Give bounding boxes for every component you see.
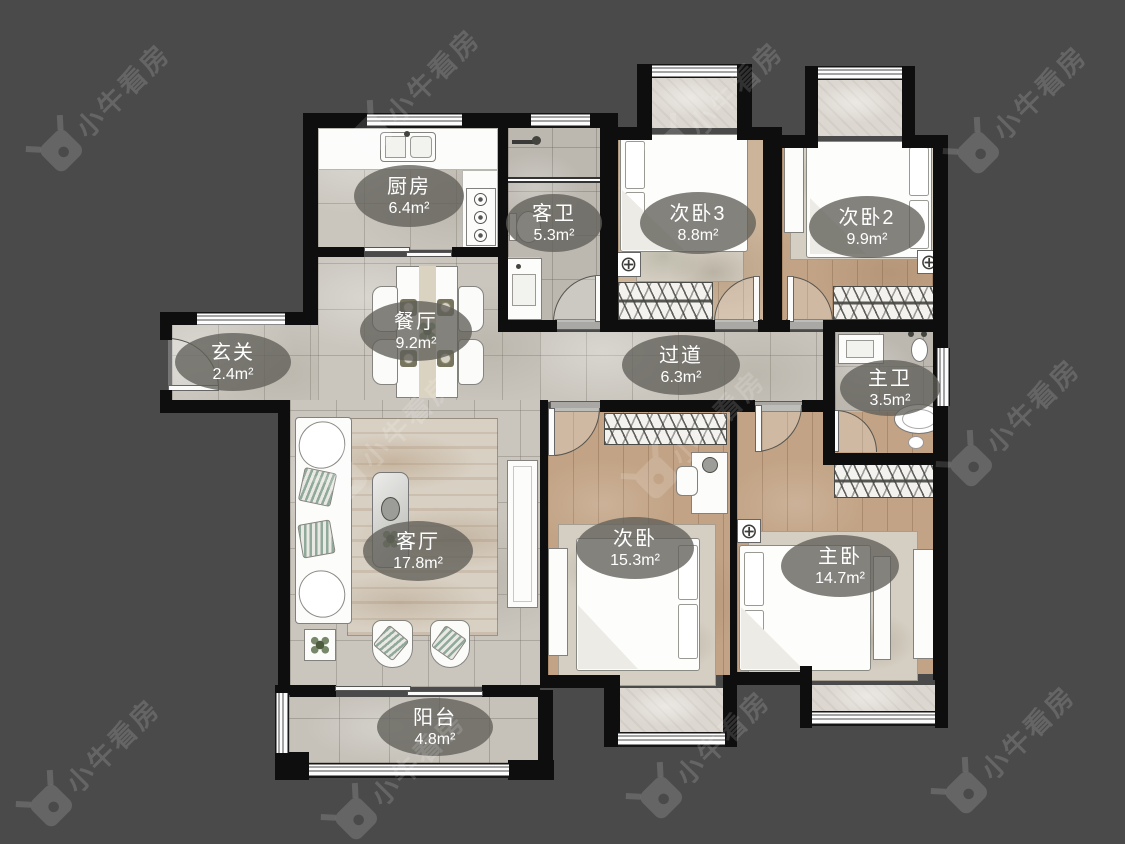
room-name: 客卫: [532, 202, 576, 227]
brand-bull-icon: [332, 794, 380, 842]
room-area: 8.8m²: [678, 227, 719, 245]
wall: [285, 312, 318, 325]
room-label-living: 客厅 17.8m²: [363, 521, 473, 581]
vanity-basin: [846, 340, 874, 358]
sink-basin: [410, 136, 432, 158]
watermark: 小牛看房: [940, 675, 1083, 818]
brand-bull-icon: [954, 128, 1002, 176]
plant-icon: [308, 633, 332, 657]
wall: [318, 247, 364, 257]
wall: [830, 320, 948, 332]
bay-window-floor: [812, 685, 935, 713]
wall: [540, 400, 548, 688]
wall: [462, 113, 532, 128]
door-leaf: [753, 276, 760, 322]
wall: [590, 113, 618, 128]
wall: [935, 666, 948, 728]
room-name: 厨房: [387, 175, 431, 200]
watermark-text: 小牛看房: [55, 688, 167, 800]
wall: [800, 666, 812, 728]
room-area: 3.5m²: [870, 392, 911, 410]
room-label-master-bath: 主卫 3.5m²: [840, 360, 940, 416]
room-name: 玄关: [211, 341, 255, 366]
room-area: 14.7m²: [815, 570, 865, 588]
faucet-icon: [404, 131, 410, 137]
floor-heating-icon: [737, 519, 761, 543]
brand-bull-icon: [37, 126, 85, 174]
room-label-master-bedroom: 主卧 14.7m²: [781, 535, 899, 597]
room-label-entry: 玄关 2.4m²: [175, 333, 291, 391]
brand-bull-icon: [942, 768, 990, 816]
room-area: 9.2m²: [396, 335, 437, 353]
wall: [637, 64, 652, 128]
watermark-text: 小牛看房: [982, 35, 1094, 147]
watermark-text: 小牛看房: [65, 33, 177, 145]
room-label-dining: 餐厅 9.2m²: [360, 301, 472, 361]
room-label-bedroom: 次卧 15.3m²: [576, 517, 694, 579]
sliding-door: [335, 686, 411, 691]
watermark: 小牛看房: [945, 348, 1088, 491]
wall-toilet-icon: [911, 338, 928, 362]
side-cabinet: [784, 143, 804, 233]
bay-window-floor: [818, 80, 902, 136]
wall: [933, 135, 948, 680]
wall: [482, 685, 540, 697]
watermark: 小牛看房: [952, 35, 1095, 178]
wall: [805, 66, 818, 136]
faucet-icon: [516, 264, 521, 269]
sliding-door: [406, 252, 452, 257]
room-name: 过道: [659, 344, 703, 369]
wall: [730, 400, 737, 685]
wall: [902, 66, 915, 136]
vase-icon: [381, 497, 400, 521]
door-leaf: [787, 276, 794, 322]
wall: [763, 128, 782, 332]
wall: [540, 675, 606, 688]
room-name: 次卧3: [669, 202, 726, 227]
bay-window: [818, 66, 902, 80]
window: [197, 312, 285, 325]
room-area: 6.3m²: [661, 369, 702, 387]
room-label-guest-bath: 客卫 5.3m²: [506, 194, 602, 252]
burner-icon: [474, 211, 487, 224]
room-name: 次卧: [613, 527, 657, 552]
bay-window: [812, 711, 935, 726]
window: [936, 348, 950, 406]
watermark-text: 小牛看房: [970, 675, 1082, 787]
wall: [160, 400, 290, 413]
room-name: 主卫: [868, 367, 912, 392]
window: [531, 113, 590, 128]
wall: [538, 690, 553, 762]
sofa-pillow: [297, 519, 335, 558]
shower-head-icon: [532, 136, 541, 145]
watermark-text: 小牛看房: [975, 348, 1087, 460]
door-leaf: [755, 405, 762, 452]
sliding-door: [407, 691, 483, 696]
brand-bull-icon: [947, 441, 995, 489]
wall: [278, 411, 290, 695]
wall: [758, 320, 790, 332]
room-name: 客厅: [396, 530, 440, 555]
room-area: 9.9m²: [847, 231, 888, 249]
wall: [600, 128, 618, 332]
wall: [275, 752, 309, 780]
shower-partition: [508, 177, 600, 183]
room-area: 5.3m²: [534, 227, 575, 245]
room-label-kitchen: 厨房 6.4m²: [354, 165, 464, 227]
side-cabinet: [548, 548, 568, 656]
room-label-bedroom3: 次卧3 8.8m²: [640, 192, 756, 254]
wall: [508, 760, 554, 780]
room-area: 17.8m²: [393, 555, 443, 573]
wall: [498, 320, 557, 332]
tv-cabinet-inner: [513, 466, 532, 602]
window: [275, 693, 289, 753]
floor-heating-icon: [616, 252, 641, 277]
burner-icon: [474, 229, 487, 242]
room-area: 2.4m²: [213, 366, 254, 384]
wall: [782, 135, 818, 148]
wall: [802, 400, 835, 412]
wall: [160, 312, 172, 340]
wall: [275, 685, 289, 693]
pillow: [744, 552, 764, 606]
vanity-basin: [512, 274, 536, 306]
pillow: [909, 147, 929, 196]
room-area: 15.3m²: [610, 552, 660, 570]
wall: [303, 113, 318, 325]
desk-lamp-icon: [702, 457, 718, 473]
sliding-door: [364, 247, 410, 252]
room-name: 次卧2: [838, 206, 895, 231]
room-area: 6.4m²: [389, 200, 430, 218]
wardrobe: [834, 464, 942, 498]
door-leaf: [548, 408, 555, 456]
wall: [823, 320, 835, 465]
brand-bull-icon: [637, 773, 685, 821]
room-label-bedroom2: 次卧2 9.9m²: [809, 196, 925, 258]
watermark: 小牛看房: [35, 33, 178, 176]
pillow: [678, 604, 698, 659]
wardrobe: [833, 286, 941, 320]
wall: [290, 685, 336, 697]
wall: [823, 453, 948, 465]
wall: [603, 320, 715, 332]
room-name: 主卧: [818, 545, 862, 570]
brand-bull-icon: [27, 781, 75, 829]
floor-drain-icon: [908, 436, 924, 449]
room-name: 餐厅: [394, 310, 438, 335]
side-cabinet: [913, 549, 934, 659]
burner-icon: [474, 193, 487, 206]
wardrobe: [618, 282, 713, 320]
floor-plan: 厨房 6.4m² 客卫 5.3m² 次卧3 8.8m² 次卧2 9.9m² 玄关…: [0, 0, 1125, 844]
watermark: 小牛看房: [25, 688, 168, 831]
